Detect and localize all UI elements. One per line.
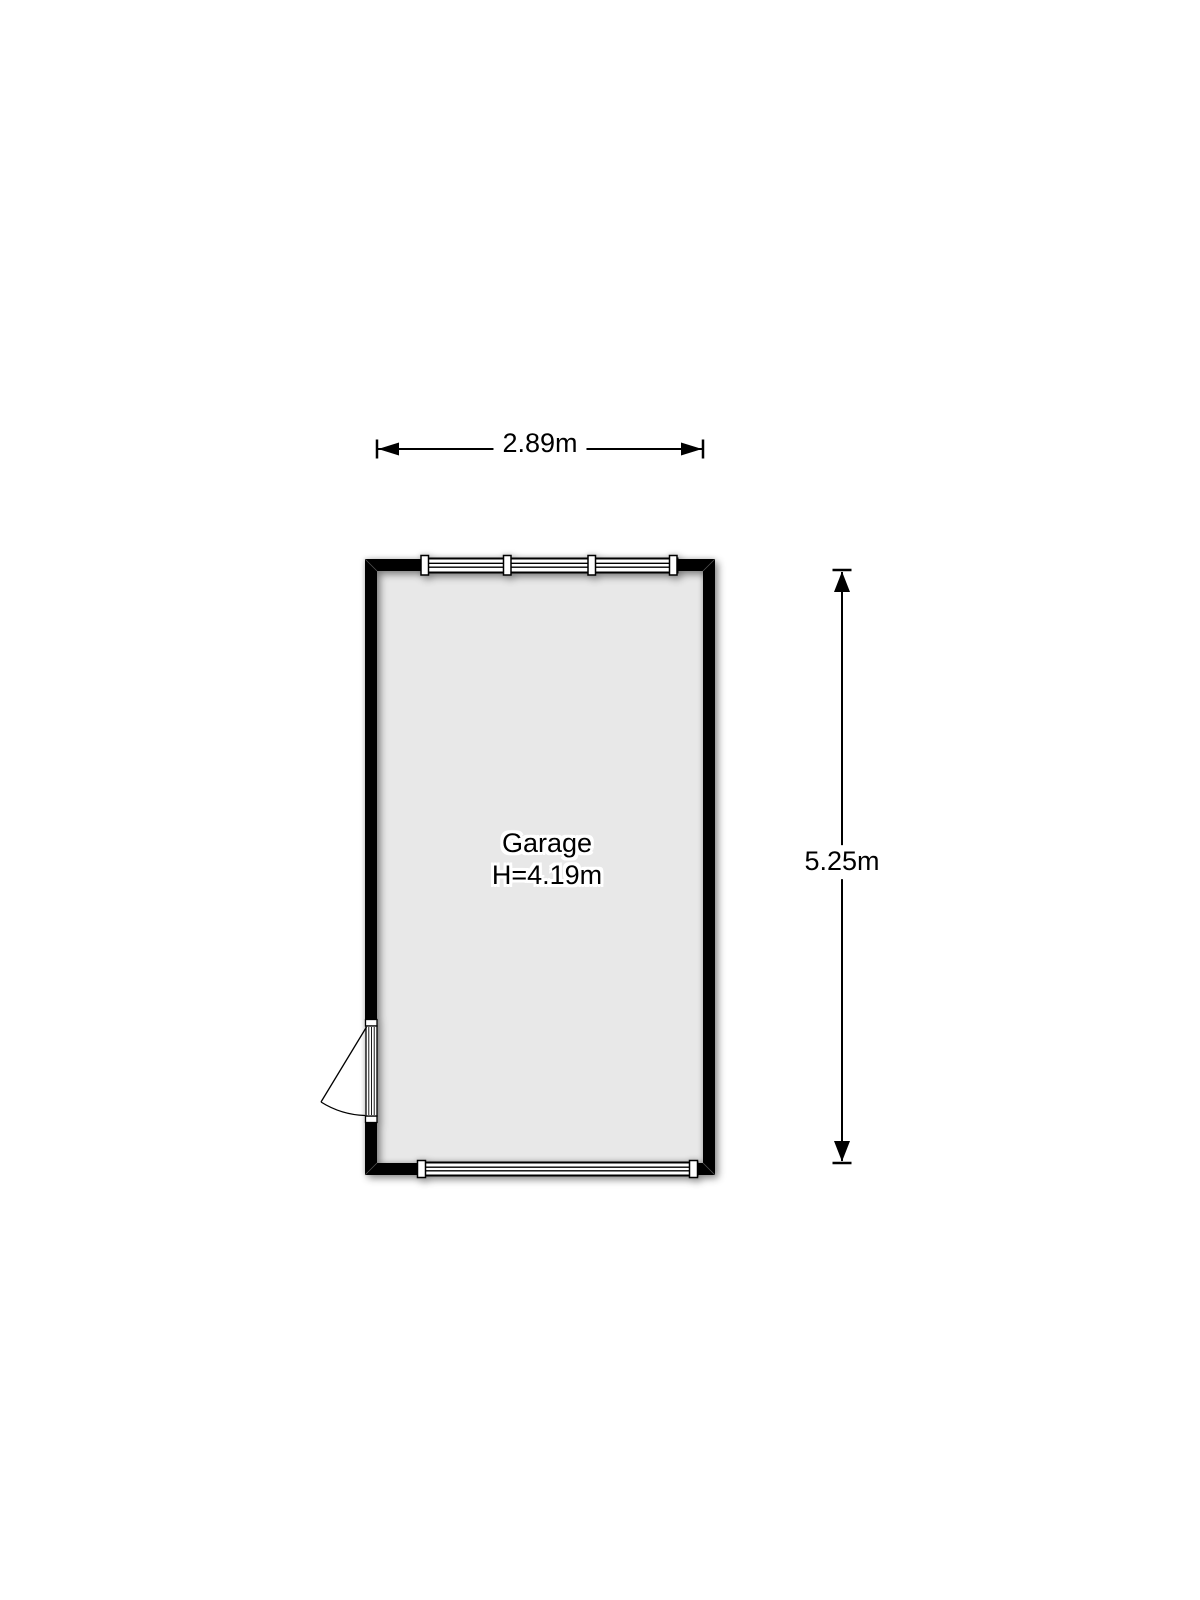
left-wall-upper (365, 559, 377, 1020)
width-dimension-label: 2.89m (493, 427, 586, 461)
room-ceiling-height: H=4.19m (492, 859, 602, 891)
door (366, 1020, 378, 1123)
door-leaf-open-line (321, 1027, 367, 1102)
door-swing-arc (321, 1102, 365, 1116)
top-window-cap-left (421, 556, 429, 576)
arrow-down-icon (834, 1141, 850, 1162)
room-name: Garage (492, 827, 602, 859)
floorplan-canvas: 2.89m 5.25m Garage H=4.19m (0, 0, 1200, 1600)
arrow-left-icon (378, 443, 399, 456)
bottom-window-cap-right (690, 1161, 698, 1178)
top-window (421, 556, 678, 576)
top-window-mullion-1 (504, 556, 512, 576)
door-swing (321, 1027, 367, 1116)
arrow-up-icon (834, 572, 850, 593)
right-wall (703, 559, 715, 1175)
bottom-window (418, 1161, 698, 1178)
top-window-cap-right (670, 556, 678, 576)
bottom-window-cap-left (418, 1161, 426, 1178)
arrow-right-icon (681, 443, 702, 456)
door-jamb-bottom (366, 1116, 378, 1123)
top-window-mullion-2 (588, 556, 596, 576)
door-jamb-top (366, 1020, 378, 1027)
height-dimension-label: 5.25m (795, 845, 888, 879)
room-label: Garage H=4.19m (492, 827, 602, 891)
floorplan-drawing (0, 0, 1200, 1600)
left-wall-lower (365, 1123, 377, 1176)
